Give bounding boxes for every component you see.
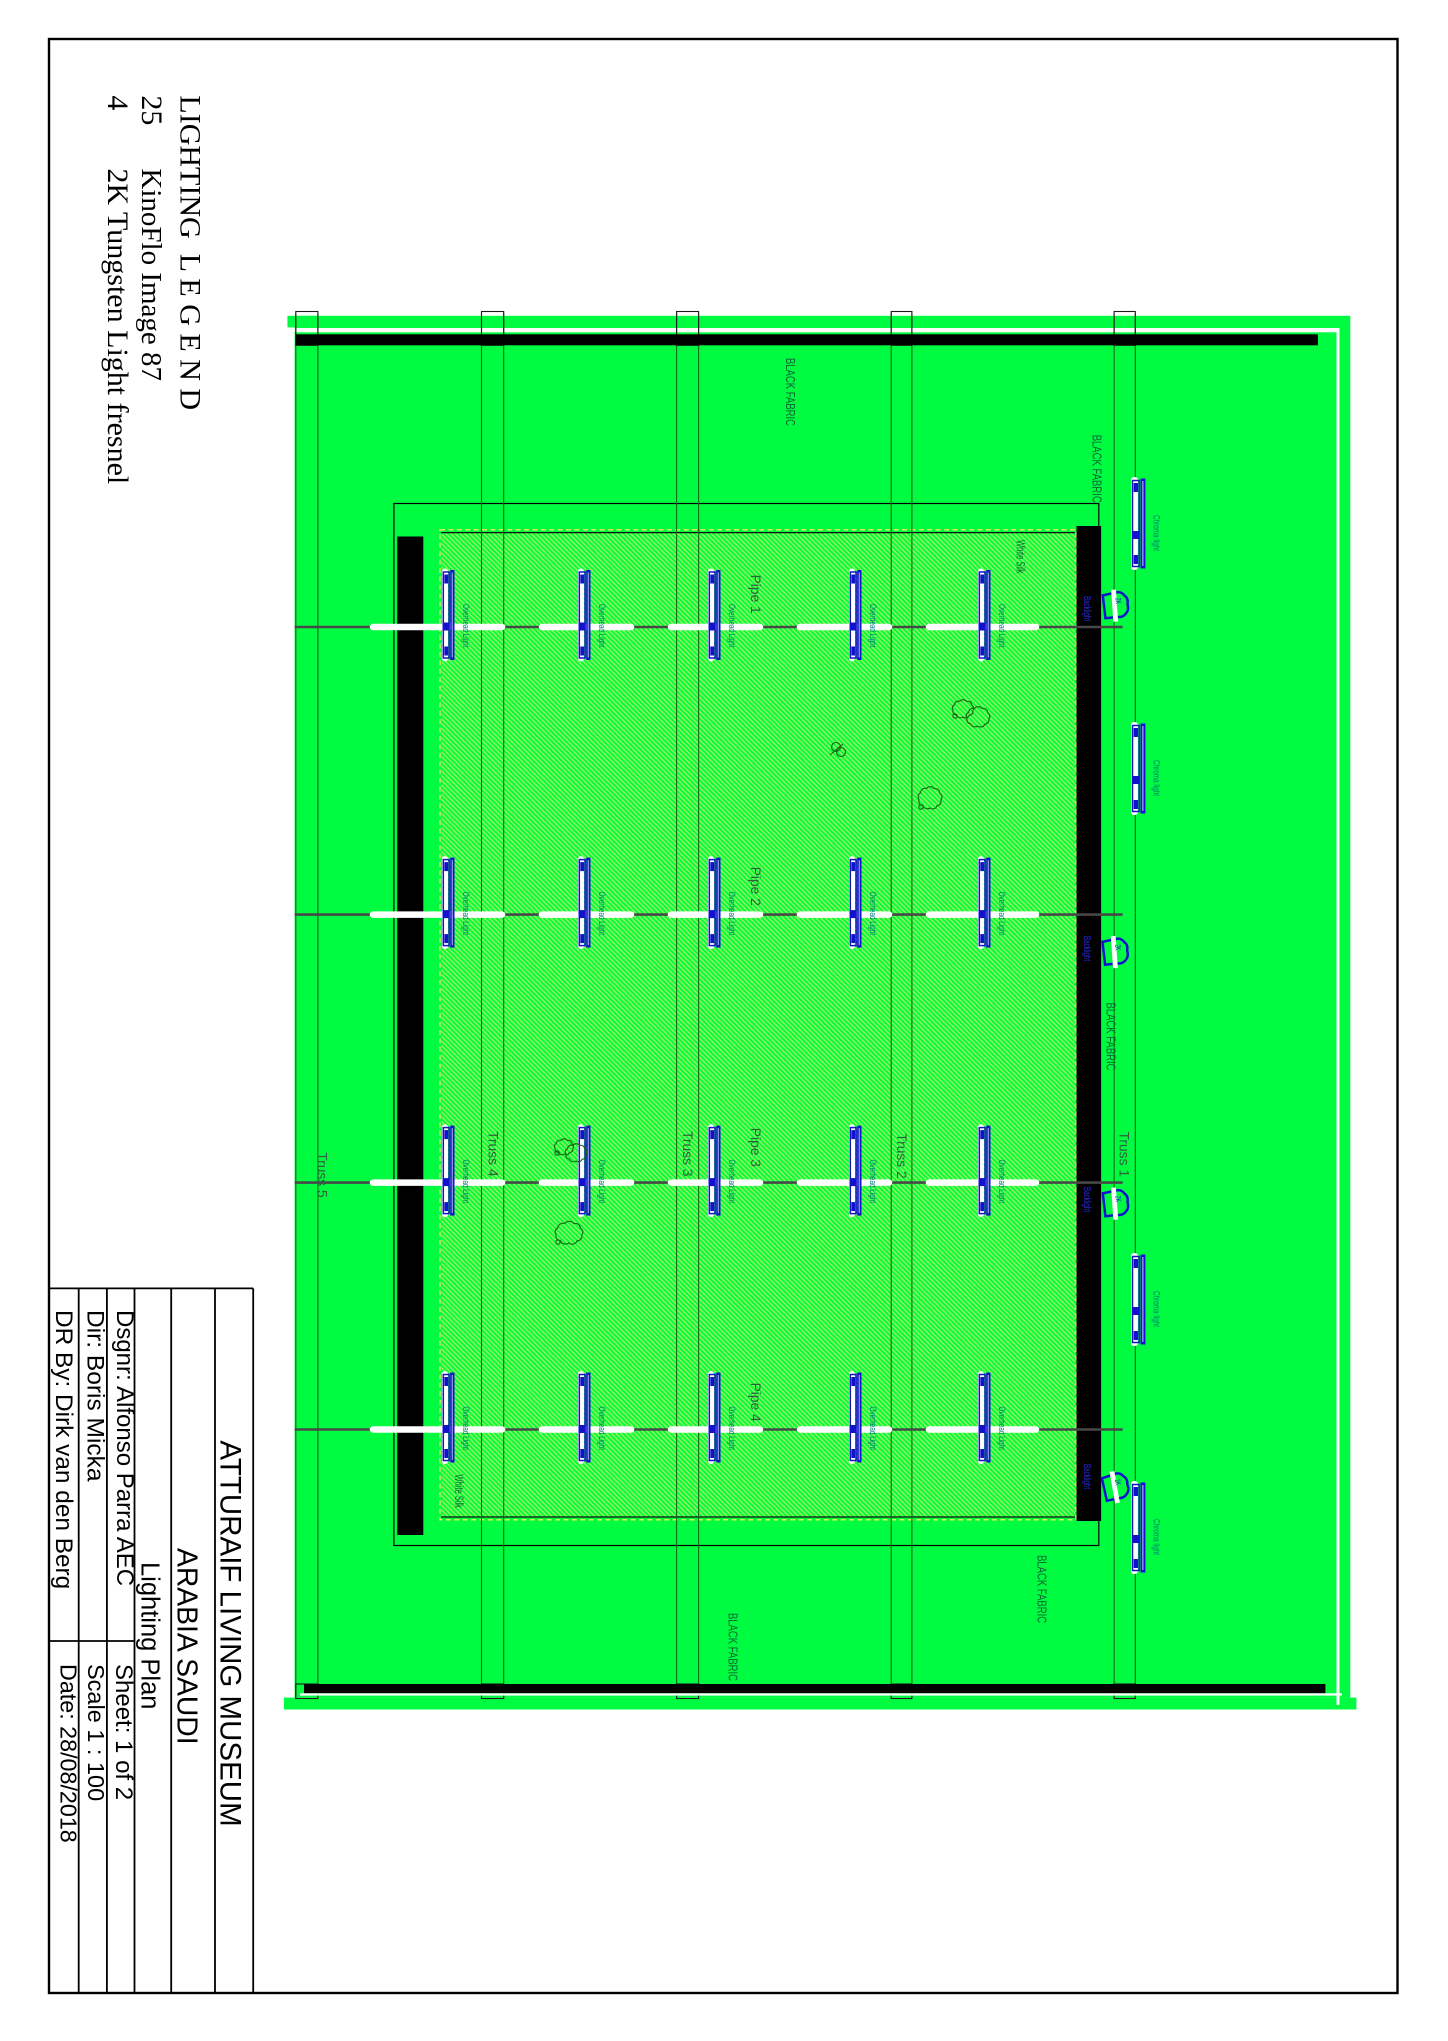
svg-text:Chroma light: Chroma light (1151, 760, 1162, 797)
svg-text:Pipe 1: Pipe 1 (748, 575, 763, 614)
svg-text:White Silk: White Silk (451, 1474, 464, 1508)
svg-text:Overhead Light: Overhead Light (997, 604, 1008, 648)
svg-text:Dsgnr: Alfonso Parra AEC: Dsgnr: Alfonso Parra AEC (111, 1310, 138, 1586)
svg-text:KinoFlo Image 87: KinoFlo Image 87 (135, 168, 167, 381)
svg-text:Backlight: Backlight (1082, 1187, 1094, 1213)
svg-text:Lighting Plan: Lighting Plan (136, 1562, 164, 1709)
svg-text:2K: 2K (1113, 598, 1122, 605)
svg-text:ATTURAIF LIVING MUSEUM: ATTURAIF LIVING MUSEUM (214, 1440, 247, 1826)
svg-text:Overhead Light: Overhead Light (461, 1160, 472, 1204)
svg-text:Overhead Light: Overhead Light (727, 892, 738, 936)
svg-text:Scale 1 : 100: Scale 1 : 100 (83, 1664, 109, 1801)
svg-text:BLACK FABRIC: BLACK FABRIC (1034, 1555, 1048, 1623)
svg-text:Overhead Light: Overhead Light (868, 604, 879, 648)
svg-text:Overhead Light: Overhead Light (727, 1160, 738, 1204)
svg-text:Truss 3: Truss 3 (680, 1131, 695, 1177)
svg-text:Overhead Light: Overhead Light (461, 1407, 472, 1451)
svg-text:Backlight: Backlight (1082, 936, 1094, 962)
svg-text:Overhead Light: Overhead Light (727, 604, 738, 648)
svg-text:Date: 28/08/2018: Date: 28/08/2018 (55, 1664, 81, 1843)
svg-text:Truss 4: Truss 4 (486, 1131, 501, 1177)
svg-text:Chroma light: Chroma light (1151, 1519, 1162, 1556)
svg-text:Overhead Light: Overhead Light (868, 1160, 879, 1204)
svg-text:2K Tungsten Light fresnel: 2K Tungsten Light fresnel (101, 168, 134, 484)
svg-text:Pipe 2: Pipe 2 (748, 867, 763, 906)
svg-text:Overhead Light: Overhead Light (997, 1407, 1008, 1451)
svg-text:Overhead Light: Overhead Light (597, 604, 608, 648)
svg-text:Backlight: Backlight (1082, 1464, 1094, 1490)
svg-text:Overhead Light: Overhead Light (727, 1407, 738, 1451)
svg-text:Truss 5: Truss 5 (315, 1152, 330, 1198)
svg-text:Pipe 3: Pipe 3 (748, 1128, 763, 1167)
svg-text:Chroma light: Chroma light (1151, 1291, 1162, 1328)
svg-text:Backlight: Backlight (1082, 596, 1094, 622)
svg-text:Overhead Light: Overhead Light (997, 1160, 1008, 1204)
svg-text:Overhead Light: Overhead Light (597, 892, 608, 936)
svg-text:White Silk: White Silk (1013, 540, 1026, 574)
svg-text:Overhead Light: Overhead Light (868, 1407, 879, 1451)
svg-text:Overhead Light: Overhead Light (597, 1160, 608, 1204)
svg-text:BLACK FABRIC: BLACK FABRIC (1089, 435, 1103, 503)
svg-text:Dir: Boris Micka: Dir: Boris Micka (82, 1310, 109, 1482)
svg-text:LIGHTING L E G E N D: LIGHTING L E G E N D (174, 95, 207, 410)
svg-text:ARABIA SAUDI: ARABIA SAUDI (172, 1548, 204, 1745)
svg-text:Sheet: 1 of 2: Sheet: 1 of 2 (110, 1664, 137, 1800)
svg-text:BLACK FABRIC: BLACK FABRIC (783, 358, 797, 426)
svg-text:Overhead Light: Overhead Light (597, 1407, 608, 1451)
svg-text:Truss 1: Truss 1 (1117, 1132, 1132, 1178)
svg-text:BLACK FABRIC: BLACK FABRIC (1103, 1003, 1117, 1071)
svg-text:Truss 2: Truss 2 (894, 1133, 909, 1179)
svg-text:2K: 2K (1113, 1196, 1122, 1203)
svg-text:Overhead Light: Overhead Light (461, 604, 472, 648)
svg-text:Overhead Light: Overhead Light (997, 892, 1008, 936)
svg-text:BLACK FABRIC: BLACK FABRIC (725, 1613, 739, 1681)
svg-text:4: 4 (101, 95, 134, 110)
svg-text:Pipe 4: Pipe 4 (748, 1383, 763, 1422)
svg-text:Overhead Light: Overhead Light (461, 892, 472, 936)
svg-text:Overhead Light: Overhead Light (868, 892, 879, 936)
svg-text:Chroma light: Chroma light (1151, 515, 1162, 552)
svg-text:DR By: Dirk van den Berg: DR By: Dirk van den Berg (50, 1310, 77, 1589)
svg-text:25: 25 (135, 95, 168, 125)
svg-text:2K: 2K (1113, 944, 1122, 951)
